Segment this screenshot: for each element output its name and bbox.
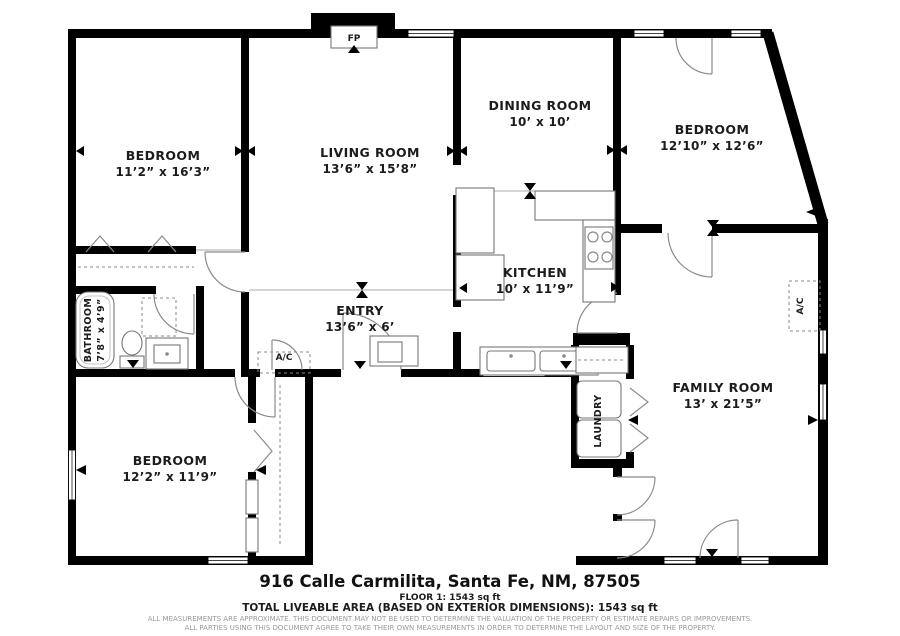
living-room-dims: 13’6” x 15’8”	[323, 162, 418, 176]
dining-room-dims: 10’ x 10’	[509, 115, 570, 129]
room-labels: FP BEDROOM 11’2” x 16’3” LIVING ROOM 13’…	[83, 34, 806, 484]
entry-name: ENTRY	[336, 303, 384, 318]
footer: 916 Calle Carmilita, Santa Fe, NM, 87505…	[148, 572, 753, 632]
toilet	[122, 331, 142, 355]
ac-right-label: A/C	[796, 297, 806, 314]
living-room-name: LIVING ROOM	[320, 145, 420, 160]
bathroom-dims: 7’8” x 4’9”	[96, 298, 107, 361]
bedroom-bottom-left-dims: 12’2” x 11’9”	[123, 470, 218, 484]
family-room-name: FAMILY ROOM	[672, 380, 773, 395]
bedroom-top-left-dims: 11’2” x 16’3”	[116, 165, 211, 179]
total-area-line: TOTAL LIVEABLE AREA (BASED ON EXTERIOR D…	[242, 602, 658, 614]
fireplace-label: FP	[348, 34, 361, 44]
bedroom-top-right-dims: 12’10” x 12’6”	[660, 139, 764, 153]
kitchen-cabinet	[456, 188, 494, 253]
bathroom-name: BATHROOM	[83, 298, 94, 362]
disclaimer-line-2: ALL PARTIES USING THIS DOCUMENT AGREE TO…	[185, 624, 716, 632]
bathtub	[76, 292, 114, 368]
bedroom-top-right-name: BEDROOM	[675, 122, 750, 137]
entry-dims: 13’6” x 6’	[325, 320, 395, 334]
kitchen-sink	[487, 351, 535, 371]
floor-plan-drawing: FP BEDROOM 11’2” x 16’3” LIVING ROOM 13’…	[0, 0, 900, 636]
kitchen-name: KITCHEN	[503, 265, 567, 280]
shower	[142, 298, 176, 336]
ac-entry-label: A/C	[276, 353, 293, 363]
kitchen-dims: 10’ x 11’9”	[496, 282, 574, 296]
disclaimer-line-1: ALL MEASUREMENTS ARE APPROXIMATE. THIS D…	[148, 615, 753, 623]
bedroom-bottom-left-name: BEDROOM	[133, 453, 208, 468]
address-line: 916 Calle Carmilita, Santa Fe, NM, 87505	[259, 572, 640, 591]
bedroom-top-left-name: BEDROOM	[126, 148, 201, 163]
dining-room-name: DINING ROOM	[489, 98, 592, 113]
kitchen-counter	[535, 191, 615, 220]
family-room-dims: 13’ x 21’5”	[684, 397, 762, 411]
laundry-label: LAUNDRY	[593, 394, 604, 447]
floor-plan-page: FP BEDROOM 11’2” x 16’3” LIVING ROOM 13’…	[0, 0, 900, 636]
